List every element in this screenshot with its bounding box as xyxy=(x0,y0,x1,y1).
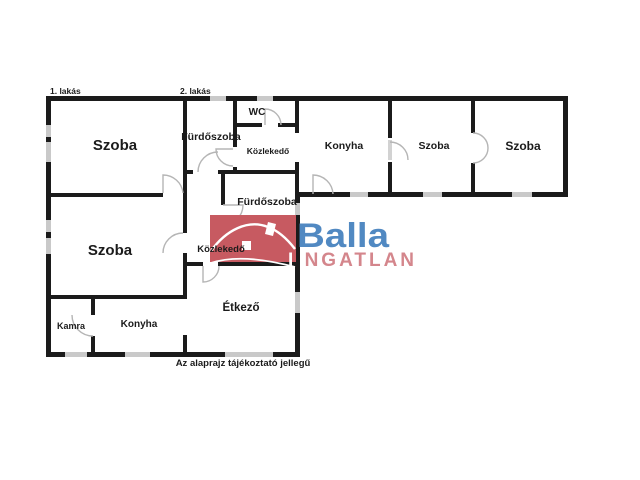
room-label-furdoszoba-1: Fürdőszoba xyxy=(181,132,241,143)
room-label-konyha-1: Konyha xyxy=(121,320,158,330)
room-label-wc: WC xyxy=(249,108,266,118)
apartment-1-label: 1. lakás xyxy=(50,87,81,96)
room-label-furdoszoba-2: Fürdőszoba xyxy=(237,197,297,208)
room-label-kozlekedo-1: Közlekedő xyxy=(247,147,290,156)
room-label-szoba-4: Szoba xyxy=(505,140,540,152)
room-label-szoba-2: Szoba xyxy=(88,243,132,258)
floorplan-drawing: Balla I NGATLAN xyxy=(0,0,640,480)
room-label-kozlekedo-2: Közlekedő xyxy=(197,245,245,255)
logo-subtitle-suffix: NGATLAN xyxy=(305,250,417,271)
logo-subtitle-prefix: I xyxy=(288,250,296,271)
room-label-szoba-3: Szoba xyxy=(419,141,450,152)
room-label-kamra: Kamra xyxy=(57,322,85,331)
floorplan-page: Balla I NGATLAN 1. lakás 2. lakás Szoba … xyxy=(0,0,640,480)
room-label-konyha-2: Konyha xyxy=(325,141,364,152)
room-label-szoba-1: Szoba xyxy=(93,138,137,153)
door-leaves xyxy=(388,140,392,160)
apartment-2-label: 2. lakás xyxy=(180,87,211,96)
disclaimer-text: Az alaprajz tájékoztató jellegű xyxy=(176,359,311,369)
room-label-etkezo: Étkező xyxy=(222,303,259,315)
logo-subtitle-text: I NGATLAN xyxy=(288,250,417,271)
